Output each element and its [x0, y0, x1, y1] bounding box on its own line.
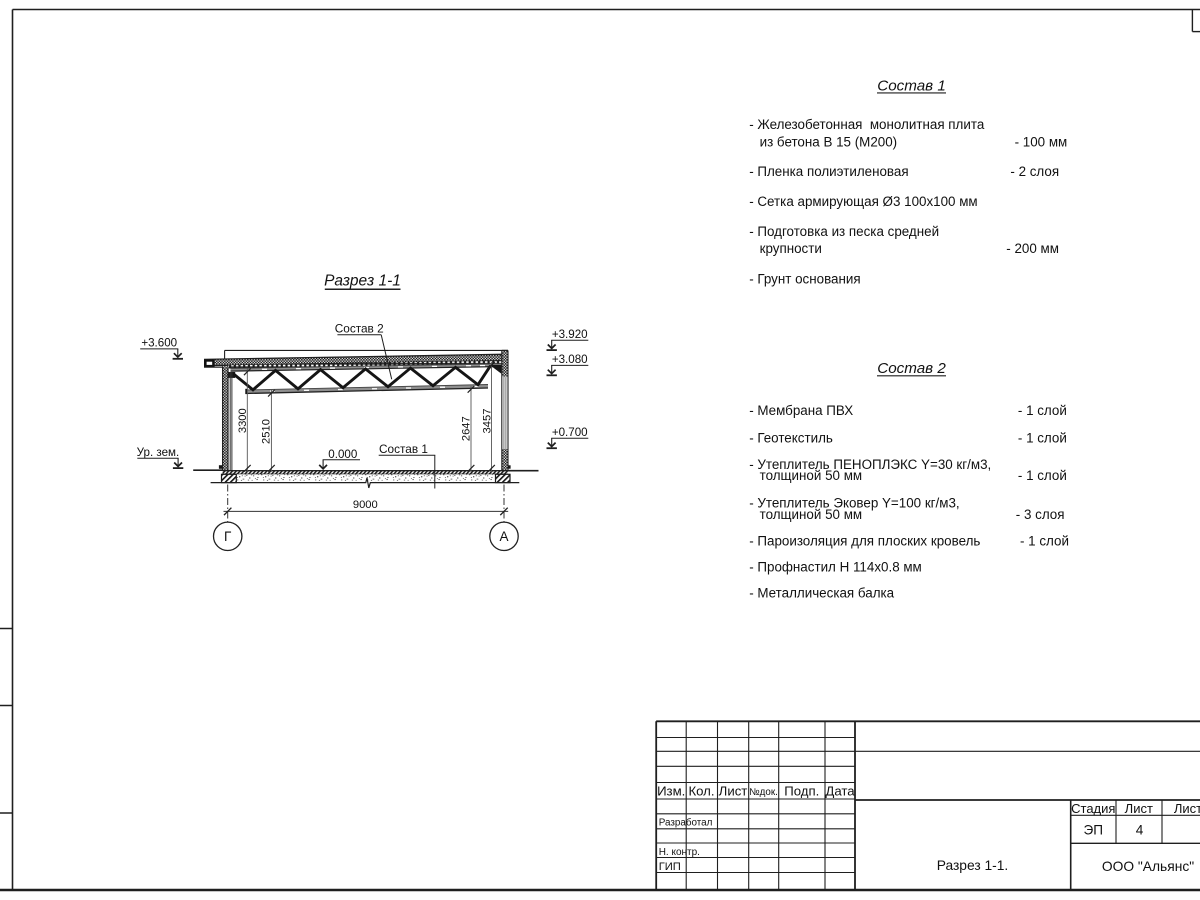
svg-text:- 1 слой: - 1 слой	[1018, 431, 1067, 446]
svg-text:- 1 слой: - 1 слой	[1018, 468, 1067, 483]
svg-text:- Пароизоляция для плоских кро: - Пароизоляция для плоских кровель	[749, 533, 980, 548]
svg-text:Состав 1: Состав 1	[877, 77, 946, 94]
svg-text:ЭП: ЭП	[1084, 822, 1104, 837]
svg-text:- 1 слой: - 1 слой	[1020, 533, 1069, 548]
svg-text:Состав 2: Состав 2	[335, 322, 384, 336]
svg-text:- Подготовка из песка средней: - Подготовка из песка средней	[749, 224, 939, 239]
svg-text:- 2 слоя: - 2 слоя	[1010, 164, 1059, 179]
svg-text:Разрез 1-1.: Разрез 1-1.	[937, 858, 1009, 873]
svg-text:- Металлическая балка: - Металлическая балка	[749, 586, 894, 601]
svg-text:- 3 слоя: - 3 слоя	[1016, 507, 1065, 522]
svg-text:- 100 мм: - 100 мм	[1015, 134, 1068, 149]
svg-text:Кол.: Кол.	[688, 783, 714, 798]
svg-text:толщиной 50 мм: толщиной 50 мм	[760, 507, 863, 522]
svg-text:+0.700: +0.700	[552, 426, 588, 439]
svg-text:+3.600: +3.600	[141, 337, 177, 350]
svg-text:+3.920: +3.920	[552, 328, 588, 341]
svg-text:толщиной 50 мм: толщиной 50 мм	[760, 468, 863, 483]
svg-text:0.000: 0.000	[328, 448, 357, 461]
svg-text:- Железобетонная монолитная п: - Железобетонная монолитная плита	[749, 117, 985, 132]
svg-text:- Сетка армирующая Ø3 100х100: - Сетка армирующая Ø3 100х100 мм	[749, 194, 977, 209]
svg-text:Подп.: Подп.	[784, 783, 819, 798]
svg-text:2510: 2510	[261, 419, 273, 444]
svg-text:Лист: Лист	[719, 783, 748, 798]
svg-text:ГИП: ГИП	[659, 861, 681, 873]
svg-text:Разработал: Разработал	[659, 817, 713, 828]
svg-text:- Грунт основания: - Грунт основания	[749, 272, 860, 287]
svg-text:крупности: крупности	[760, 241, 822, 256]
svg-text:- Профнастил Н 114х0.8 мм: - Профнастил Н 114х0.8 мм	[749, 560, 922, 575]
svg-text:Изм.: Изм.	[657, 783, 685, 798]
svg-text:- 1 слой: - 1 слой	[1018, 403, 1067, 418]
svg-text:Н. контр.: Н. контр.	[659, 847, 700, 858]
svg-text:Состав 2: Состав 2	[877, 360, 946, 377]
svg-text:+3.080: +3.080	[552, 353, 588, 366]
svg-text:- 200 мм: - 200 мм	[1006, 241, 1059, 256]
svg-text:А: А	[499, 529, 508, 544]
svg-text:Ур. зем.: Ур. зем.	[137, 446, 180, 459]
svg-text:№док.: №док.	[749, 787, 778, 798]
svg-text:- Мембрана ПВХ: - Мембрана ПВХ	[749, 403, 853, 418]
svg-text:3300: 3300	[237, 408, 249, 433]
svg-text:2647: 2647	[461, 416, 473, 441]
svg-text:3457: 3457	[482, 409, 494, 434]
svg-text:- Пленка полиэтиленовая: - Пленка полиэтиленовая	[749, 164, 908, 179]
svg-text:Листов: Листов	[1174, 801, 1200, 816]
svg-text:Стадия: Стадия	[1071, 801, 1115, 816]
svg-text:9000: 9000	[353, 499, 378, 511]
svg-text:Разрез 1-1: Разрез 1-1	[324, 273, 401, 290]
svg-text:Дата: Дата	[825, 783, 855, 798]
svg-text:Состав 1: Состав 1	[379, 442, 428, 456]
svg-text:ООО "Альянс": ООО "Альянс"	[1102, 859, 1194, 874]
svg-text:Г: Г	[224, 529, 232, 544]
svg-text:- Геотекстиль: - Геотекстиль	[749, 431, 833, 446]
svg-text:Лист: Лист	[1125, 801, 1153, 816]
svg-text:из бетона В 15 (М200): из бетона В 15 (М200)	[760, 134, 898, 149]
svg-text:4: 4	[1136, 822, 1144, 837]
